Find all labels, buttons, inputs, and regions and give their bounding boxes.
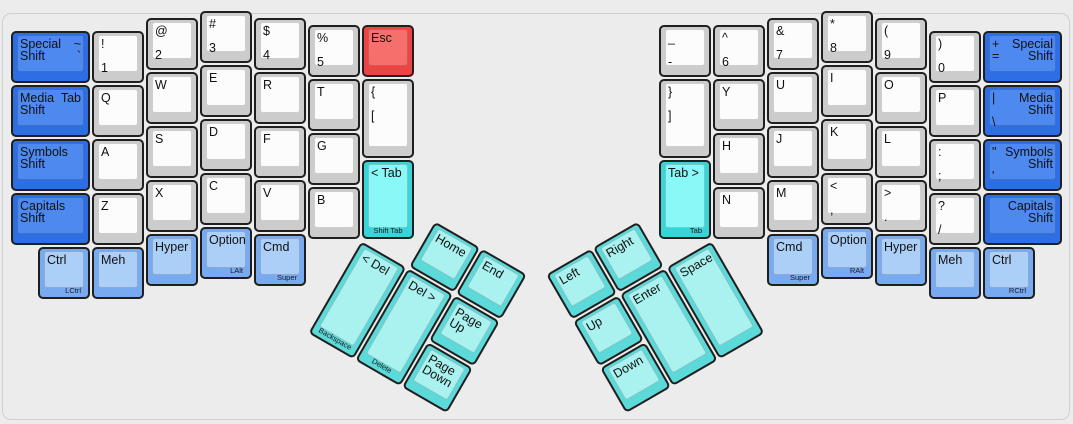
key-left-bracket[interactable]: {[ [362, 79, 414, 158]
key-legend-line: 3 [209, 42, 216, 54]
key-legend-left: T [317, 86, 325, 98]
key-9[interactable]: (9 [875, 18, 927, 70]
key-legend-line: 6 [722, 56, 729, 68]
key-legend-line: ) [938, 38, 945, 50]
key-legend-line: H [722, 140, 731, 152]
key-legend-line: \ [992, 116, 995, 128]
key-media-shift-left[interactable]: Media ShiftTab [11, 85, 90, 137]
key-legend-left: P [938, 92, 946, 104]
key-legend-line: 5 [317, 56, 328, 68]
key-legend-line: ' [992, 170, 996, 182]
key-legend-line: 2 [155, 49, 168, 61]
key-legend-left: += [992, 38, 999, 62]
key-legend-line: " [992, 146, 996, 158]
key-legend-line: N [722, 194, 731, 206]
key-legend-line: V [263, 187, 271, 199]
key-legend-line: < [830, 180, 837, 192]
key-legend-line: % [317, 32, 328, 44]
key-legend-line: ! [101, 38, 108, 50]
key-3[interactable]: #3 [200, 11, 252, 63]
key-legend-line: F [263, 133, 271, 145]
key-shift-tab[interactable]: < TabShift Tab [362, 160, 414, 239]
key-s[interactable]: S [146, 126, 198, 178]
key-u[interactable]: U [767, 72, 819, 124]
key-legend-line: & [776, 25, 784, 37]
key-capitals-shift-left[interactable]: Capitals Shift [11, 193, 90, 245]
key-legend-right: Symbols Shift [1005, 146, 1053, 170]
key-legend-left: "' [992, 146, 996, 182]
key-legend-left: E [209, 72, 217, 84]
key-legend-left: Symbols Shift [20, 146, 81, 170]
key-legend-line: [ [371, 110, 375, 122]
key-legend-left: Z [101, 200, 109, 212]
key-legend-line: 0 [938, 62, 945, 74]
key-symbols-shift-left[interactable]: Symbols Shift [11, 139, 90, 191]
key-r[interactable]: R [254, 72, 306, 124]
key-legend-line: : [938, 146, 941, 158]
key-legend-line: I [830, 72, 833, 84]
key-option-left[interactable]: OptionLAlt [200, 227, 252, 279]
key-legend-left: Meh [101, 254, 125, 266]
key-legend-left: S [155, 133, 163, 145]
key-w[interactable]: W [146, 72, 198, 124]
key-0[interactable]: )0 [929, 31, 981, 83]
key-legend-line [263, 37, 270, 49]
key-esc[interactable]: Esc [362, 25, 414, 77]
key-legend-left: )0 [938, 38, 945, 74]
key-legend-left: {[ [371, 86, 375, 122]
key-legend-left: U [776, 79, 785, 91]
key-4[interactable]: $4 [254, 18, 306, 70]
key-legend-line: J [776, 133, 782, 145]
key-legend-left: Esc [371, 32, 392, 44]
key-z[interactable]: Z [92, 193, 144, 245]
key-cmd-left[interactable]: CmdSuper [254, 234, 306, 286]
key-media-shift-right[interactable]: |\Media Shift [983, 85, 1062, 137]
key-legend-line: } [668, 86, 672, 98]
key-legend-left: N [722, 194, 731, 206]
key-legend-line: _ [668, 32, 675, 44]
key-legend-line: Z [101, 200, 109, 212]
key-comma[interactable]: <, [821, 173, 873, 225]
key-front-legend: Tab [690, 226, 702, 235]
key-front-legend: RAlt [850, 266, 864, 275]
key-front-legend: Shift Tab [364, 226, 412, 235]
key-legend-left: G [317, 140, 327, 152]
key-legend-left: :; [938, 146, 941, 182]
key-t[interactable]: T [308, 79, 360, 131]
key-j[interactable]: J [767, 126, 819, 178]
key-c[interactable]: C [200, 173, 252, 225]
key-1[interactable]: !1 [92, 31, 144, 83]
key-legend-left: K [830, 126, 838, 138]
key-legend-left: Cmd [776, 241, 802, 253]
key-meh-left[interactable]: Meh [92, 247, 144, 299]
key-5[interactable]: %5 [308, 25, 360, 77]
key-legend-line: A [101, 146, 109, 158]
key-x[interactable]: X [146, 180, 198, 232]
key-legend-line: { [371, 86, 375, 98]
key-e[interactable]: E [200, 65, 252, 117]
key-legend-line [668, 44, 675, 56]
key-7[interactable]: &7 [767, 18, 819, 70]
key-o[interactable]: O [875, 72, 927, 124]
key-legend-line: Symbols Shift [1005, 146, 1053, 170]
key-legend-left: }] [668, 86, 672, 122]
key-legend-line: B [317, 194, 325, 206]
key-legend-left: W [155, 79, 167, 91]
key-legend-line: U [776, 79, 785, 91]
key-legend-line: Tab > [668, 167, 699, 179]
key-legend-line: Hyper [884, 241, 917, 253]
key-legend-line: Esc [371, 32, 392, 44]
key-i[interactable]: I [821, 65, 873, 117]
key-legend-line: . [884, 211, 891, 223]
key-cmd-right[interactable]: CmdSuper [767, 234, 819, 286]
key-legend-line: R [263, 79, 272, 91]
key-legend-line: ? [938, 200, 945, 212]
key-legend-line: Meh [101, 254, 125, 266]
key-legend-left: M [776, 187, 786, 199]
key-legend-left: V [263, 187, 271, 199]
key-special-shift-left[interactable]: Special Shift~` [11, 31, 90, 83]
key-legend-left: Media Shift [20, 92, 62, 116]
key-legend-left: Y [722, 86, 730, 98]
ergodox-keyboard-layout: Special Shift~`Media ShiftTabSymbols Shi… [0, 0, 1073, 424]
key-legend-left: H [722, 140, 731, 152]
key-legend-line: Capitals Shift [20, 200, 81, 224]
key-legend-left: O [884, 79, 894, 91]
key-legend-line: * [830, 18, 837, 30]
key-legend-line: ; [938, 170, 941, 182]
key-legend-line: , [830, 204, 837, 216]
key-legend-line [371, 98, 375, 110]
key-legend-line: Y [722, 86, 730, 98]
key-legend-right: Media Shift [1005, 92, 1053, 116]
key-legend-line: < Tab [371, 167, 402, 179]
key-legend-line: 9 [884, 49, 891, 61]
key-legend-line: 7 [776, 49, 784, 61]
key-legend-line: C [209, 180, 218, 192]
key-y[interactable]: Y [713, 79, 765, 131]
key-legend-right: ~` [74, 38, 81, 62]
key-legend-line: # [209, 18, 216, 30]
key-minus[interactable]: _- [659, 25, 711, 77]
key-front-legend: Super [790, 273, 810, 282]
key-front-legend: LCtrl [65, 286, 81, 295]
key-legend-line: $ [263, 25, 270, 37]
key-legend-line: > [884, 187, 891, 199]
key-legend-line: Option [209, 234, 243, 246]
key-legend-line: Capitals Shift [1005, 200, 1053, 224]
key-legend-line: W [155, 79, 167, 91]
key-legend-line: 8 [830, 42, 837, 54]
key-legend-line: 1 [101, 62, 108, 74]
key-legend-left: (9 [884, 25, 891, 61]
key-period[interactable]: >. [875, 180, 927, 232]
key-slash[interactable]: ?/ [929, 193, 981, 245]
key-legend-line: Media Shift [1005, 92, 1053, 116]
key-legend-left: ^6 [722, 32, 729, 68]
key-8[interactable]: *8 [821, 11, 873, 63]
key-legend-line: L [884, 133, 891, 145]
key-legend-line [722, 44, 729, 56]
key-legend-left: |\ [992, 92, 995, 128]
key-legend-line: K [830, 126, 838, 138]
key-legend-left: !1 [101, 38, 108, 74]
key-semicolon[interactable]: :; [929, 139, 981, 191]
key-l[interactable]: L [875, 126, 927, 178]
key-legend-left: <, [830, 180, 837, 216]
key-legend-left: F [263, 133, 271, 145]
key-legend-left: Cmd [263, 241, 289, 253]
key-legend-line: D [209, 126, 218, 138]
key-legend-left: Q [101, 92, 111, 104]
key-legend-left: ?/ [938, 200, 945, 236]
key-legend-line [776, 37, 784, 49]
key-legend-left: Hyper [884, 241, 917, 253]
key-legend-left: $4 [263, 25, 270, 61]
key-legend-line: Ctrl [992, 254, 1011, 266]
key-legend-left: &7 [776, 25, 784, 61]
key-legend-left: Ctrl [47, 254, 66, 266]
key-legend-left: C [209, 180, 218, 192]
key-a[interactable]: A [92, 139, 144, 191]
key-legend-line: X [155, 187, 163, 199]
key-legend-line: Tab [61, 92, 81, 104]
key-ctrl-right[interactable]: CtrlRCtrl [983, 247, 1035, 299]
key-legend-line: Symbols Shift [20, 146, 81, 170]
key-legend-line: - [668, 56, 675, 68]
key-legend-line [884, 37, 891, 49]
key-legend-left: @2 [155, 25, 168, 61]
key-k[interactable]: K [821, 119, 873, 171]
key-symbols-shift-right[interactable]: "'Symbols Shift [983, 139, 1062, 191]
key-special-shift-right[interactable]: +=Special Shift [983, 31, 1062, 83]
key-legend-left: R [263, 79, 272, 91]
key-legend-line: ] [668, 110, 672, 122]
key-legend-left: #3 [209, 18, 216, 54]
key-legend-line: O [884, 79, 894, 91]
key-legend-line: Cmd [263, 241, 289, 253]
key-legend-left: J [776, 133, 782, 145]
key-legend-line: | [992, 92, 995, 104]
key-legend-line: Q [101, 92, 111, 104]
key-legend-line: ` [74, 50, 81, 62]
key-legend-line: G [317, 140, 327, 152]
key-legend-line: Cmd [776, 241, 802, 253]
key-legend-left: *8 [830, 18, 837, 54]
key-legend-line: Ctrl [47, 254, 66, 266]
key-h[interactable]: H [713, 133, 765, 185]
key-meh-right[interactable]: Meh [929, 247, 981, 299]
key-legend-line: = [992, 50, 999, 62]
key-legend-left: < Tab [371, 167, 402, 179]
key-legend-line: P [938, 92, 946, 104]
key-option-right[interactable]: OptionRAlt [821, 227, 873, 279]
key-legend-line: Hyper [155, 241, 188, 253]
key-legend-line: Meh [938, 254, 962, 266]
key-legend-right: Special Shift [1005, 38, 1053, 62]
key-legend-left: Option [209, 234, 243, 246]
key-legend-line: T [317, 86, 325, 98]
key-legend-line [668, 98, 672, 110]
key-legend-line: 4 [263, 49, 270, 61]
key-legend-line: ( [884, 25, 891, 37]
key-legend-line: E [209, 72, 217, 84]
key-legend-line [317, 44, 328, 56]
key-legend-line: @ [155, 25, 168, 37]
key-tab-right[interactable]: Tab >Tab [659, 160, 711, 239]
key-legend-line: Special Shift [20, 38, 62, 62]
key-g[interactable]: G [308, 133, 360, 185]
key-right-bracket[interactable]: }] [659, 79, 711, 158]
key-b[interactable]: B [308, 187, 360, 239]
key-legend-left: B [317, 194, 325, 206]
key-legend-line: Special Shift [1005, 38, 1053, 62]
key-6[interactable]: ^6 [713, 25, 765, 77]
key-legend-left: Option [830, 234, 864, 246]
key-legend-line: S [155, 133, 163, 145]
key-f[interactable]: F [254, 126, 306, 178]
key-ctrl-left[interactable]: CtrlLCtrl [38, 247, 90, 299]
key-legend-left: X [155, 187, 163, 199]
key-legend-right: Capitals Shift [1005, 200, 1053, 224]
key-p[interactable]: P [929, 85, 981, 137]
key-legend-left: D [209, 126, 218, 138]
key-d[interactable]: D [200, 119, 252, 171]
key-legend-left: Capitals Shift [20, 200, 81, 224]
key-hyper-right[interactable]: Hyper [875, 234, 927, 286]
key-v[interactable]: V [254, 180, 306, 232]
key-legend-left: A [101, 146, 109, 158]
key-legend-left: _- [668, 32, 675, 68]
key-legend-line [884, 199, 891, 211]
key-hyper-left[interactable]: Hyper [146, 234, 198, 286]
key-legend-left: Special Shift [20, 38, 62, 62]
key-legend-right: Tab [61, 92, 81, 104]
key-legend-line: / [938, 224, 945, 236]
key-n[interactable]: N [713, 187, 765, 239]
key-legend-line: M [776, 187, 786, 199]
key-m[interactable]: M [767, 180, 819, 232]
key-legend-left: %5 [317, 32, 328, 68]
key-legend-line: Media Shift [20, 92, 62, 116]
key-legend-line: ^ [722, 32, 729, 44]
key-legend-left: >. [884, 187, 891, 223]
key-legend-left: Ctrl [992, 254, 1011, 266]
key-legend-left: Tab > [668, 167, 699, 179]
key-front-legend: Super [277, 273, 297, 282]
key-legend-left: Meh [938, 254, 962, 266]
key-2[interactable]: @2 [146, 18, 198, 70]
key-front-legend: RCtrl [1009, 286, 1026, 295]
key-q[interactable]: Q [92, 85, 144, 137]
key-legend-line: Option [830, 234, 864, 246]
key-front-legend: LAlt [230, 266, 243, 275]
key-legend-left: I [830, 72, 833, 84]
key-legend-left: L [884, 133, 891, 145]
key-legend-left: Hyper [155, 241, 188, 253]
key-capitals-shift-right[interactable]: Capitals Shift [983, 193, 1062, 245]
key-legend-line [155, 37, 168, 49]
